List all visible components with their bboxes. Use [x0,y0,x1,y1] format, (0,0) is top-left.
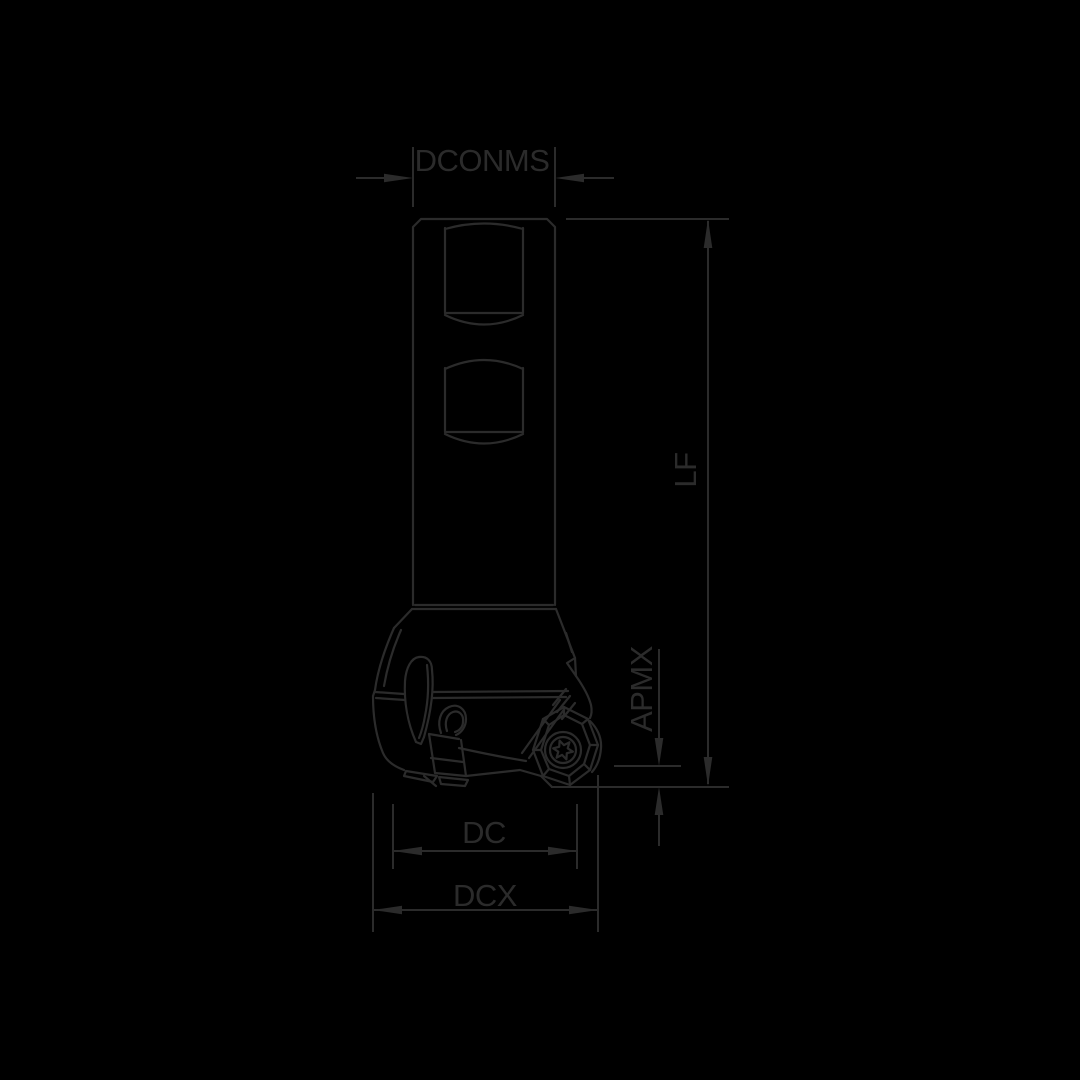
clamp-hook-outer [439,706,466,735]
lower-flat-sides [445,368,523,432]
head-face-line [459,748,526,761]
dc-label: DC [462,815,506,850]
clamp-hook-inner [446,712,463,732]
lf-arrow-top [704,219,713,248]
head-notch-right [567,658,576,676]
gash-right-edge [419,657,433,737]
dcx-arrow-left [373,906,402,915]
technical-drawing-canvas: DCONMS LF APMX DC [0,0,1080,1080]
clamp-wedge [404,706,468,786]
apmx-arrow-up [655,787,664,815]
lower-flat-top-arc [445,360,523,369]
shank [412,219,556,609]
insert-assembly [533,707,601,785]
cutter-head [373,609,592,787]
head-inner-edge-left [384,630,401,686]
dimension-dconms: DCONMS [356,143,614,207]
clamp-foot-sliver-1 [404,771,437,782]
dc-arrow-right [548,847,577,856]
clamp-body [429,734,466,776]
head-bottom-edge [466,770,541,776]
upper-flat-sides [445,228,523,313]
dconms-arrow-left [384,174,413,183]
upper-flat-runout-arc [445,315,523,325]
lower-flat-runout-arc [445,434,523,444]
dimension-dc: DC [393,804,577,869]
dc-arrow-left [393,847,422,856]
tool-artwork [373,219,601,787]
dimension-apmx: APMX [614,645,681,846]
lf-label: LF [668,452,703,487]
head-flare-left [394,609,412,628]
gash-left-edge [405,657,419,742]
dimension-dcx: DCX [373,775,598,932]
dconms-label: DCONMS [415,143,550,178]
apmx-label: APMX [624,645,659,732]
screw-torx-socket [553,741,573,760]
milling-cutter-dimension-drawing: DCONMS LF APMX DC [0,0,1080,1080]
lf-arrow-bottom [704,757,713,786]
shank-outline [413,219,555,605]
clamp-foot-sliver-2 [439,777,468,786]
dconms-arrow-right [555,174,584,183]
dcx-arrow-right [569,906,598,915]
head-silhouette-right [576,676,592,718]
apmx-arrow-down [655,738,664,766]
head-inner-edge-right [566,633,572,652]
clamp-body-mid-line [431,758,463,762]
upper-flat-top-arc [445,224,523,230]
dcx-label: DCX [453,878,518,913]
